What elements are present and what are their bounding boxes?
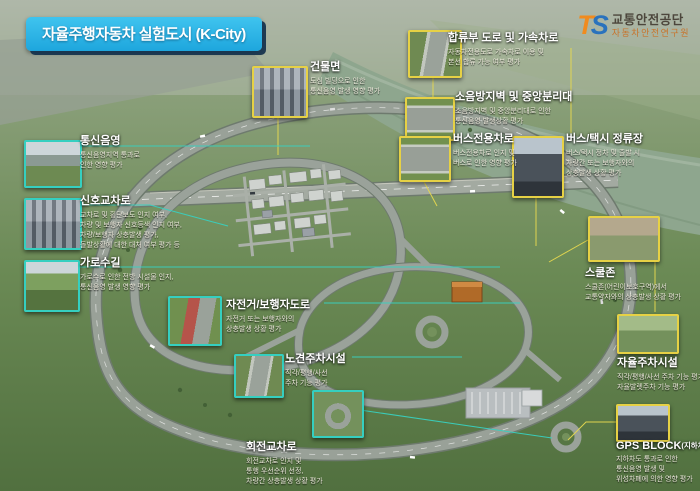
callout-text-line: 회전교차로 인지 및 [246, 457, 323, 467]
orange-building [452, 282, 482, 302]
callout-gps-block: GPS BLOCK(지하차도) 지하차도 통과로 인한 통신음영 발생 및 위성… [616, 440, 700, 485]
callout-text-line: 직각/평행/사선 주차 기능 평가, [617, 373, 700, 383]
callout-bus-taxi-stop: 버스/택시 정류장 버스/택시 정차 및 출발 시 차량간 또는 보행자와의 상… [566, 130, 643, 179]
callout-merge-road: 합류부 도로 및 가속차로 자동차전용도로 가속차로 이용 및 본선 합류 가능… [448, 29, 558, 68]
callout-text-line: 본선 합류 가능 여부 평가 [448, 58, 558, 68]
callout-title: 노견주차시설 [285, 350, 346, 366]
thumbnail-school-zone [588, 216, 660, 262]
callout-text-line: 스쿨존(어린이보호구역)에서 [585, 283, 681, 293]
callout-text-line: 통신음영 발생 영향 평가 [310, 87, 380, 97]
callout-title: 통신음영 [80, 132, 140, 148]
callout-text-line: 자전거 또는 보행자와의 [226, 315, 310, 325]
callout-signal-intersection: 신호교차로 교차로 및 횡단보도 인지 여부, 차량 및 보행자 신호등색 인지… [80, 192, 182, 251]
thumbnail-bus-taxi-stop [512, 136, 564, 198]
callout-text-line: 소음방지벽 및 중앙분리대로 인한 [455, 107, 572, 117]
thumbnail-bike-pedestrian [168, 296, 222, 346]
callout-title: GPS BLOCK(지하차도) [616, 440, 700, 452]
org-name: 교통안전공단 [612, 13, 690, 27]
callout-noise-barrier: 소음방지벽 및 중앙분리대 소음방지벽 및 중앙분리대로 인한 통신음영 발생상… [455, 88, 572, 127]
thumbnail-auto-parking [617, 314, 679, 354]
thumbnail-gps-block [616, 404, 670, 442]
callout-title-suffix: (지하차도) [681, 441, 700, 450]
callout-text-line: 통신음영지역 통과로 [80, 151, 140, 161]
callout-title: 건물면 [310, 58, 380, 74]
callout-title: 버스전용차로 [453, 130, 517, 146]
ts-logo-mark: TS [577, 12, 606, 39]
callout-text-line: 차량간 또는 보행자와의 [566, 159, 643, 169]
callout-text-line: 버스전용차로 인지 및 [453, 149, 517, 159]
callout-text-line: 돌발상황에 대한 대처 여부 평가 등 [80, 241, 182, 251]
callout-text-line: 통신음영 발생 영향 평가 [80, 283, 173, 293]
callout-text-line: 차량/보행자 상충발생 평가, [80, 231, 182, 241]
page-title: 자율주행자동차 실험도시 (K-City) [26, 17, 262, 51]
org-subname: 자동차안전연구원 [612, 28, 690, 38]
callout-text-line: 상충발생 상황 평가 [566, 169, 643, 179]
callout-title: 버스/택시 정류장 [566, 130, 643, 146]
callout-title: 합류부 도로 및 가속차로 [448, 29, 558, 45]
callout-text-line: 차량간 상충발생 상황 평가 [246, 477, 323, 487]
callout-title: 자율주차시설 [617, 354, 700, 370]
callout-text-line: 위성차폐에 의한 영향 평가 [616, 475, 700, 485]
callout-roadside-parking: 노견주차시설 직각/평행/사선 주차 기능 평가 [285, 350, 346, 389]
thumbnail-bus-lane [399, 136, 451, 182]
callout-building-zone: 건물면 도심 빌딩으로 인한 통신음영 발생 영향 평가 [310, 58, 380, 97]
thumbnail-building-zone [252, 66, 308, 118]
callout-auto-parking: 자율주차시설 직각/평행/사선 주차 기능 평가, 자율발렛주차 기능 평가 [617, 354, 700, 393]
urban-blocks [231, 162, 352, 257]
thumbnail-signal-intersection [24, 198, 82, 250]
callout-bus-lane: 버스전용차로 버스전용차로 인지 및 버스로 인한 영향 평가 [453, 130, 517, 169]
thumbnail-roundabout [312, 390, 364, 438]
callout-text-line: 지하차도 통과로 인한 [616, 455, 700, 465]
callout-text-line: 인한 영향 평가 [80, 161, 140, 171]
callout-text-line: 버스로 인한 영향 평가 [453, 159, 517, 169]
callout-title: 신호교차로 [80, 192, 182, 208]
kcity-infographic: 자율주행자동차 실험도시 (K-City) TS 교통안전공단 자동차안전연구원… [0, 0, 700, 491]
callout-tree-street: 가로수길 가로수로 인한 전방 시설물 인지, 통신음영 발생 영향 평가 [80, 254, 173, 293]
callout-bike-pedestrian: 자전거/보행자도로 자전거 또는 보행자와의 상충발생 상황 평가 [226, 296, 310, 335]
callout-title: 회전교차로 [246, 438, 323, 454]
thumbnail-tree-street [24, 260, 80, 312]
callout-text-line: 통신음영 발생 및 [616, 465, 700, 475]
ts-logo: TS 교통안전공단 자동차안전연구원 [577, 12, 690, 39]
ts-logo-names: 교통안전공단 자동차안전연구원 [612, 13, 690, 38]
callout-text-line: 교통약자와의 상충발생 상황 평가 [585, 293, 681, 303]
callout-text-line: 자동차전용도로 가속차로 이용 및 [448, 48, 558, 58]
callout-title: 소음방지벽 및 중앙분리대 [455, 88, 572, 104]
callout-text-line: 차량 및 보행자 신호등색 인지 여부, [80, 221, 182, 231]
callout-text-line: 버스/택시 정차 및 출발 시 [566, 149, 643, 159]
callout-text-line: 자율발렛주차 기능 평가 [617, 383, 700, 393]
callout-title: 자전거/보행자도로 [226, 296, 310, 312]
callout-comm-shadow: 통신음영 통신음영지역 통과로 인한 영향 평가 [80, 132, 140, 171]
callout-text-line: 교차로 및 횡단보도 인지 여부, [80, 211, 182, 221]
callout-text-line: 직각/평행/사선 [285, 369, 346, 379]
callout-school-zone: 스쿨존 스쿨존(어린이보호구역)에서 교통약자와의 상충발생 상황 평가 [585, 264, 681, 303]
callout-text-line: 가로수로 인한 전방 시설물 인지, [80, 273, 173, 283]
callout-roundabout: 회전교차로 회전교차로 인지 및 통행 우선순위 선정, 차량간 상충발생 상황… [246, 438, 323, 487]
callout-title: 스쿨존 [585, 264, 681, 280]
thumbnail-roadside-parking [234, 354, 284, 398]
callout-text-line: 통신음영 발생상황 평가 [455, 117, 572, 127]
callout-title: 가로수길 [80, 254, 173, 270]
callout-text-line: 도심 빌딩으로 인한 [310, 77, 380, 87]
callout-text-line: 상충발생 상황 평가 [226, 325, 310, 335]
thumbnail-noise-barrier [405, 97, 455, 141]
callout-text-line: 주차 기능 평가 [285, 379, 346, 389]
thumbnail-comm-shadow [24, 140, 82, 188]
callout-text-line: 통행 우선순위 선정, [246, 467, 323, 477]
